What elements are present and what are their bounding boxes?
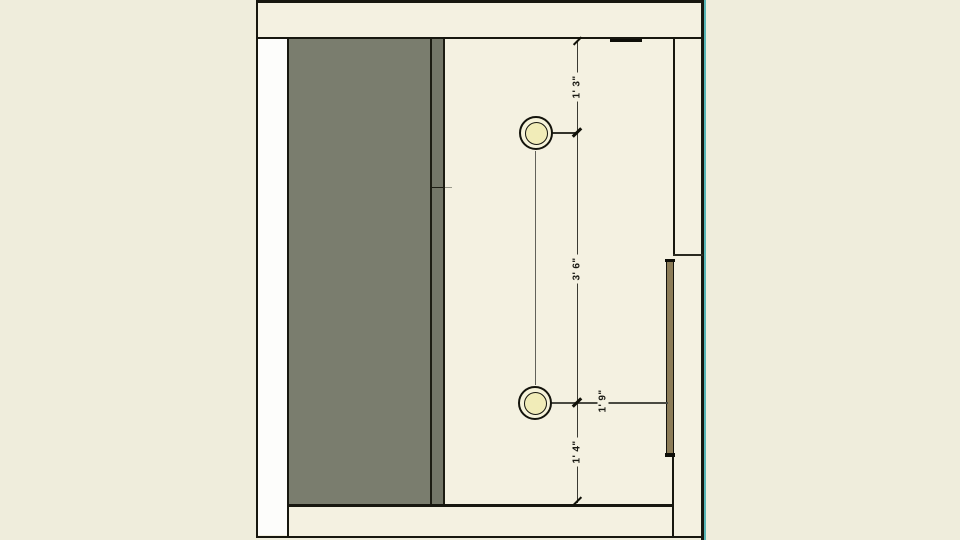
door-leaf-top-cap xyxy=(665,259,675,263)
dim-label-top-offset[interactable]: 1' 3" xyxy=(572,72,583,101)
partition-edge-line xyxy=(443,39,445,505)
section-highlight-line[interactable] xyxy=(704,0,706,540)
plan-canvas: 1' 3" 3' 6" 1' 4" 1' 9" xyxy=(0,0,960,540)
recessed-light-2-trim xyxy=(524,392,547,415)
door-leaf-bottom-cap xyxy=(665,453,675,457)
partition-joint-extension xyxy=(445,187,452,188)
dim-label-between-lights[interactable]: 3' 6" xyxy=(572,254,583,283)
recessed-light-1-trim xyxy=(525,122,548,145)
bottom-wall-line[interactable] xyxy=(288,504,674,507)
right-wall-ledge-line xyxy=(673,254,703,256)
cabinet-block[interactable] xyxy=(289,39,430,505)
recessed-light-1[interactable] xyxy=(519,116,553,150)
left-wall-strip[interactable] xyxy=(258,39,287,535)
top-frame-line[interactable] xyxy=(256,0,704,3)
right-wall-upper-line[interactable] xyxy=(673,39,675,255)
dim-label-side-offset[interactable]: 1' 9" xyxy=(598,386,609,415)
door-header-segment[interactable] xyxy=(610,39,642,43)
dim-label-bottom-offset[interactable]: 1' 4" xyxy=(572,437,583,466)
recessed-light-2[interactable] xyxy=(518,386,552,420)
light-link-line xyxy=(535,151,536,385)
partition-strip[interactable] xyxy=(432,39,443,505)
door-leaf[interactable] xyxy=(666,259,675,457)
bottom-frame-line[interactable] xyxy=(256,536,704,539)
partition-joint-line xyxy=(430,187,445,189)
